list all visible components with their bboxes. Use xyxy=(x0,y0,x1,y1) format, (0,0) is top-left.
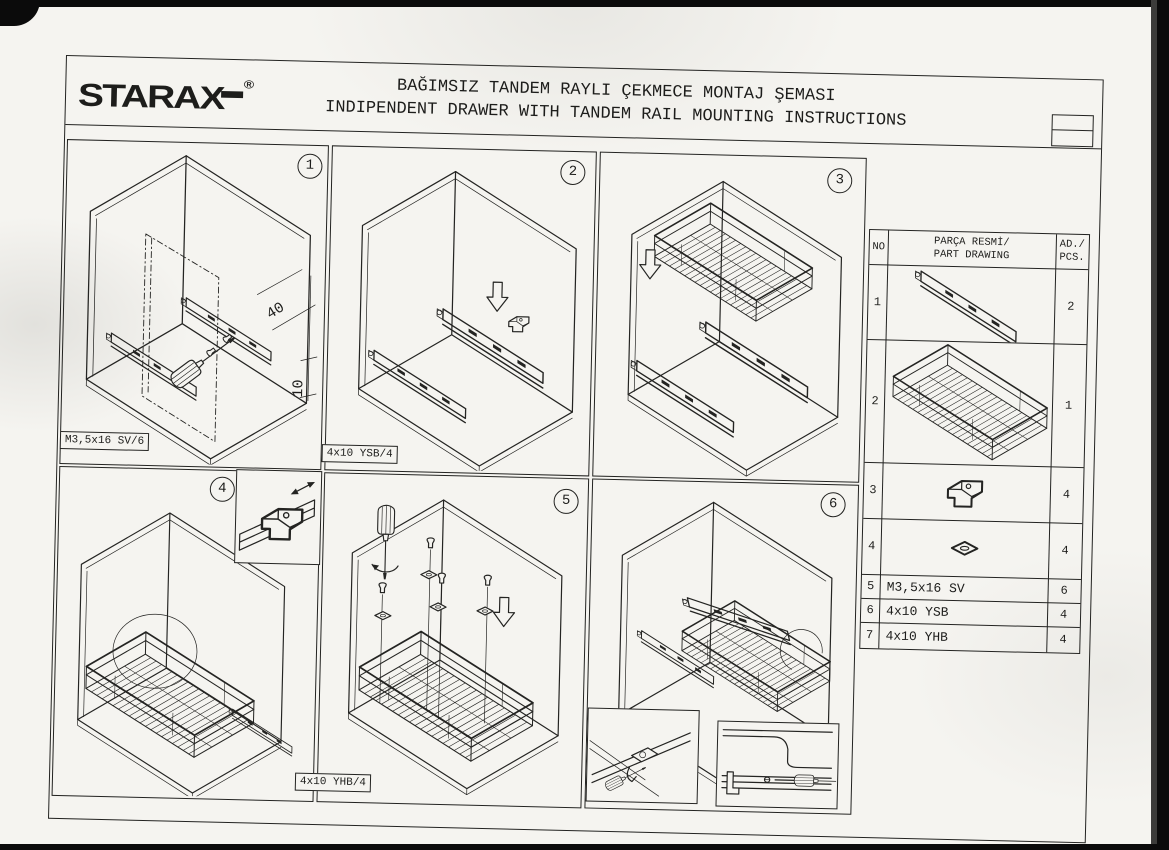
washer-icon xyxy=(375,611,391,619)
step3-drawing xyxy=(593,153,864,480)
column-header-qty-tr: AD./ xyxy=(1060,238,1086,252)
part-qty: 4 xyxy=(1048,522,1082,579)
scan-edge-right xyxy=(1157,0,1169,850)
scan-edge-top xyxy=(0,0,1169,7)
revision-cell-bottom xyxy=(1052,130,1092,146)
wire-basket-drawing xyxy=(883,339,1054,466)
basket-drawing xyxy=(681,600,832,713)
arrow-down-icon xyxy=(487,282,509,311)
rail-release-detail-inset xyxy=(586,707,700,804)
step-panel-5: 5 4x10 YHB/4 xyxy=(316,472,589,808)
drawer-profile xyxy=(722,730,832,769)
column-header-drawing: PARÇA RESMİ/PART DRAWING xyxy=(887,230,1056,268)
basket-drawing xyxy=(357,630,534,763)
screw-icon xyxy=(427,538,434,548)
washer-icon xyxy=(477,607,493,615)
rail-release-drawing xyxy=(587,708,698,802)
bracket-detail-inset xyxy=(234,469,322,565)
hardware-label: 4x10 YSB/4 xyxy=(321,444,397,464)
dimension-40: 40 xyxy=(264,299,288,323)
nut-washer-drawing xyxy=(880,518,1049,578)
step-panel-4: 4 xyxy=(52,466,322,802)
dashed-panel xyxy=(141,234,220,442)
title-block: STARAX® BAĞIMSIZ TANDEM RAYLI ÇEKMECE MO… xyxy=(65,56,1102,149)
step-panel-6: 6 xyxy=(584,479,859,815)
logo-bar xyxy=(221,91,243,98)
cabinet-drawing xyxy=(626,179,843,478)
washer-icon xyxy=(430,603,446,611)
corner-bracket xyxy=(727,772,740,794)
drawer-front-drawing xyxy=(717,722,838,808)
document-title: BAĞIMSIZ TANDEM RAYLI ÇEKMECE MONTAJ ŞEM… xyxy=(246,71,987,134)
rail-drawing xyxy=(698,322,809,403)
highlight-circle xyxy=(112,613,198,689)
part-qty: 2 xyxy=(1053,268,1088,344)
step5-drawing xyxy=(318,473,588,805)
step-panel-1: 40 10 1 M3,5x16 SV/6 xyxy=(59,139,329,470)
hardware-label: 4x10 YHB/4 xyxy=(295,773,371,793)
rail-drawing xyxy=(636,631,715,688)
washer-icon xyxy=(421,571,437,579)
column-header-no: NO xyxy=(869,230,888,264)
screwdriver-icon xyxy=(794,775,837,787)
rail-drawing xyxy=(630,360,735,437)
tandem-rail-drawing xyxy=(886,264,1056,343)
arrow-down-icon xyxy=(493,597,515,626)
drawer-front-detail-inset xyxy=(715,721,839,810)
part-no: 7 xyxy=(860,622,879,648)
bracket-icon xyxy=(262,509,303,540)
screw-icon xyxy=(438,573,445,583)
dimension-10: 10 xyxy=(290,379,307,397)
basket-drawing xyxy=(653,202,814,322)
mounting-bracket-drawing xyxy=(881,462,1050,522)
rail-drawing xyxy=(367,350,467,422)
brand-logo: STARAX® xyxy=(78,74,255,118)
part-qty: 4 xyxy=(1049,466,1083,523)
part-no: 1 xyxy=(868,264,888,339)
part-no: 6 xyxy=(861,598,880,622)
basket-drawing xyxy=(84,631,255,759)
part-no: 4 xyxy=(862,518,881,574)
step1-drawing: 40 10 xyxy=(60,140,326,467)
hardware-label: M3,5x16 SV/6 xyxy=(60,431,150,451)
column-header-drawing-en: PART DRAWING xyxy=(934,249,1010,264)
paper-sheet: STARAX® BAĞIMSIZ TANDEM RAYLI ÇEKMECE MO… xyxy=(0,6,1153,844)
revision-box xyxy=(1051,114,1094,147)
part-qty: 4 xyxy=(1047,602,1081,627)
screw-icon xyxy=(206,347,216,357)
screwdriver-icon xyxy=(376,505,394,579)
cabinet-drawing xyxy=(347,498,564,797)
scan-edge-bottom xyxy=(0,844,1169,850)
bracket-icon xyxy=(509,317,529,332)
parts-table: NO PARÇA RESMİ/PART DRAWING AD./PCS. 1 2… xyxy=(859,229,1090,654)
revision-cell-top xyxy=(1053,115,1093,131)
part-qty: 4 xyxy=(1046,626,1080,653)
cabinet-drawing xyxy=(357,169,578,473)
part-qty: 1 xyxy=(1051,343,1087,467)
step-panel-2: 2 4x10 YSB/4 xyxy=(324,145,597,476)
part-qty: 6 xyxy=(1047,578,1081,603)
screw-icon xyxy=(484,575,491,585)
part-no: 3 xyxy=(863,462,882,518)
column-header-qty-en: PCS. xyxy=(1059,251,1085,265)
bracket-detail-drawing xyxy=(235,470,321,563)
document-frame: STARAX® BAĞIMSIZ TANDEM RAYLI ÇEKMECE MO… xyxy=(48,55,1104,843)
part-no: 5 xyxy=(861,574,880,598)
screw-icon xyxy=(379,583,386,593)
brand-text: STARAX xyxy=(78,78,224,117)
step-panel-3: 3 xyxy=(592,152,867,483)
column-header-qty: AD./PCS. xyxy=(1055,234,1089,269)
highlight-arc xyxy=(780,629,823,670)
step2-drawing xyxy=(325,146,594,473)
part-name: 4x10 YHB xyxy=(878,622,1054,652)
